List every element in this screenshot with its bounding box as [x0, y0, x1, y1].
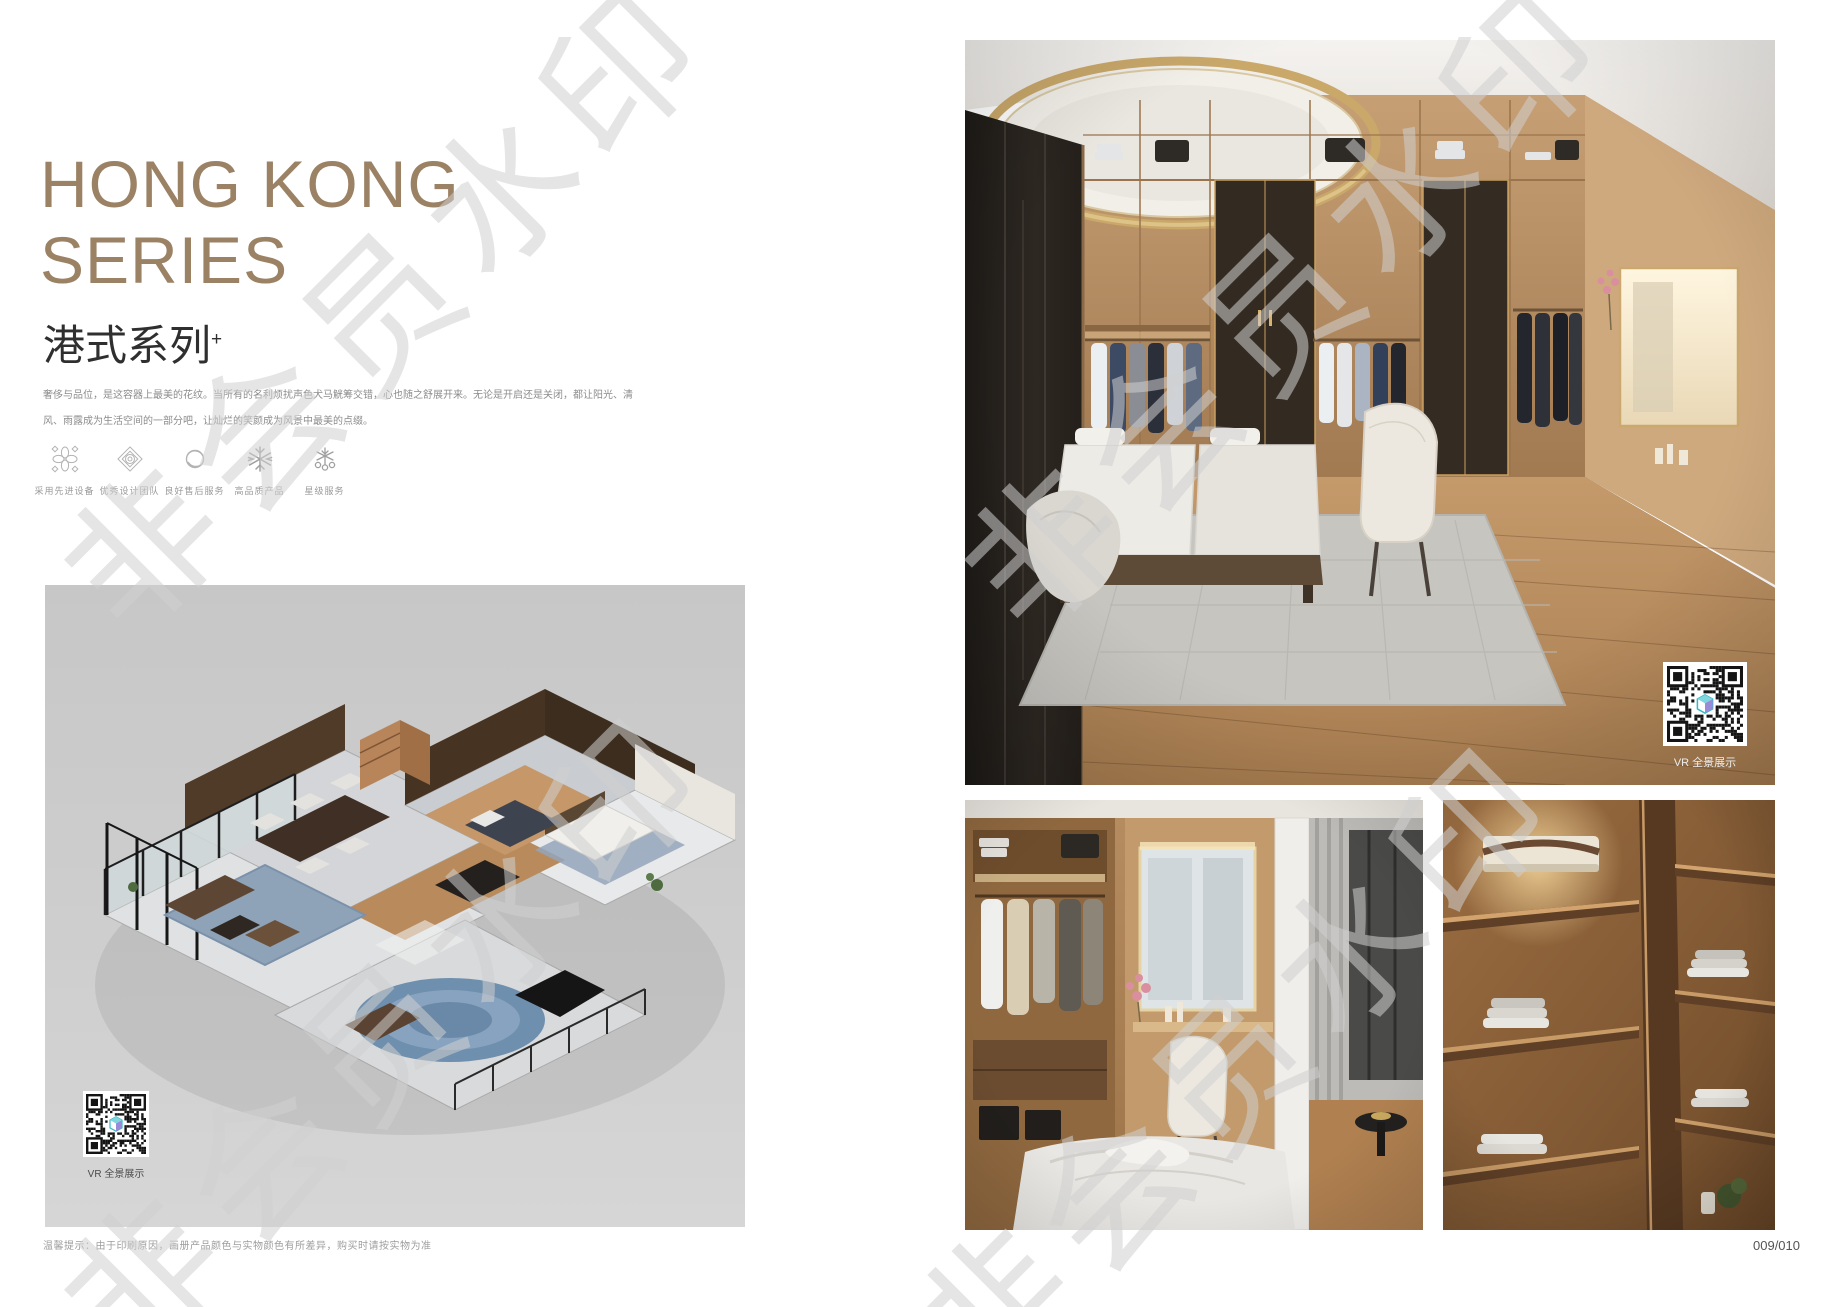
print-disclaimer: 温馨提示：由于印刷原因，画册产品颜色与实物颜色有所差异，购买时请按实物为准: [43, 1237, 432, 1252]
isometric-floorplan-illustration: [45, 585, 745, 1227]
series-description: 奢侈与品位，是这容器上最美的花纹。当所有的名利烦扰声色犬马觥筹交错，心也随之舒展…: [43, 383, 633, 435]
series-title-line2: SERIES: [40, 222, 460, 298]
feature-label: 高品质产品: [227, 484, 292, 497]
floorplan-panel: VR 全景展示: [45, 585, 745, 1227]
page-number: 009/010: [1716, 1238, 1800, 1253]
subtitle-plus-mark: +: [211, 329, 222, 350]
dressing-area-illustration: [965, 800, 1423, 1230]
series-title: HONG KONG SERIES: [40, 146, 460, 298]
shelf-closeup-photo: [1443, 800, 1775, 1230]
main-closet-photo: VR 全景展示: [965, 40, 1775, 785]
main-photo-qr-code: [1663, 662, 1747, 746]
pinwheel-icon: [50, 444, 80, 474]
series-title-line1: HONG KONG: [40, 146, 460, 222]
closet-room-illustration: [965, 40, 1775, 785]
feature-item: 星级服务: [292, 444, 357, 497]
qr-code-graphic: [1667, 666, 1743, 742]
dressing-area-photo: [965, 800, 1423, 1230]
feature-item: 高品质产品: [227, 444, 292, 497]
feature-label: 星级服务: [292, 484, 357, 497]
feature-item: 良好售后服务: [162, 444, 227, 497]
description-line: 风、雨露成为生活空间的一部分吧，让灿烂的笑颜成为风景中最美的点缀。: [43, 409, 633, 435]
catalog-page: HONG KONG SERIES 港式系列+ 奢侈与品位，是这容器上最美的花纹。…: [0, 0, 1836, 1307]
feature-label: 采用先进设备: [32, 484, 97, 497]
floorplan-qr-code: [83, 1091, 149, 1157]
feature-label: 良好售后服务: [162, 484, 227, 497]
description-line: 奢侈与品位，是这容器上最美的花纹。当所有的名利烦扰声色犬马觥筹交错，心也随之舒展…: [43, 383, 633, 409]
feature-item: 采用先进设备: [32, 444, 97, 497]
feature-list: 采用先进设备 优秀设计团队 良好售后服务: [32, 444, 357, 497]
qr-code-graphic: [86, 1094, 146, 1154]
shelf-closeup-illustration: [1443, 800, 1775, 1230]
swirl-circle-icon: [180, 444, 210, 474]
snowflake-icon: [245, 444, 275, 474]
rosette-icon: [115, 444, 145, 474]
series-subtitle: 港式系列+: [43, 312, 222, 373]
feature-label: 优秀设计团队: [97, 484, 162, 497]
main-photo-vr-label: VR 全景展示: [1653, 754, 1757, 770]
star-service-icon: [310, 444, 340, 474]
feature-item: 优秀设计团队: [97, 444, 162, 497]
floorplan-vr-label: VR 全景展示: [71, 1165, 161, 1180]
